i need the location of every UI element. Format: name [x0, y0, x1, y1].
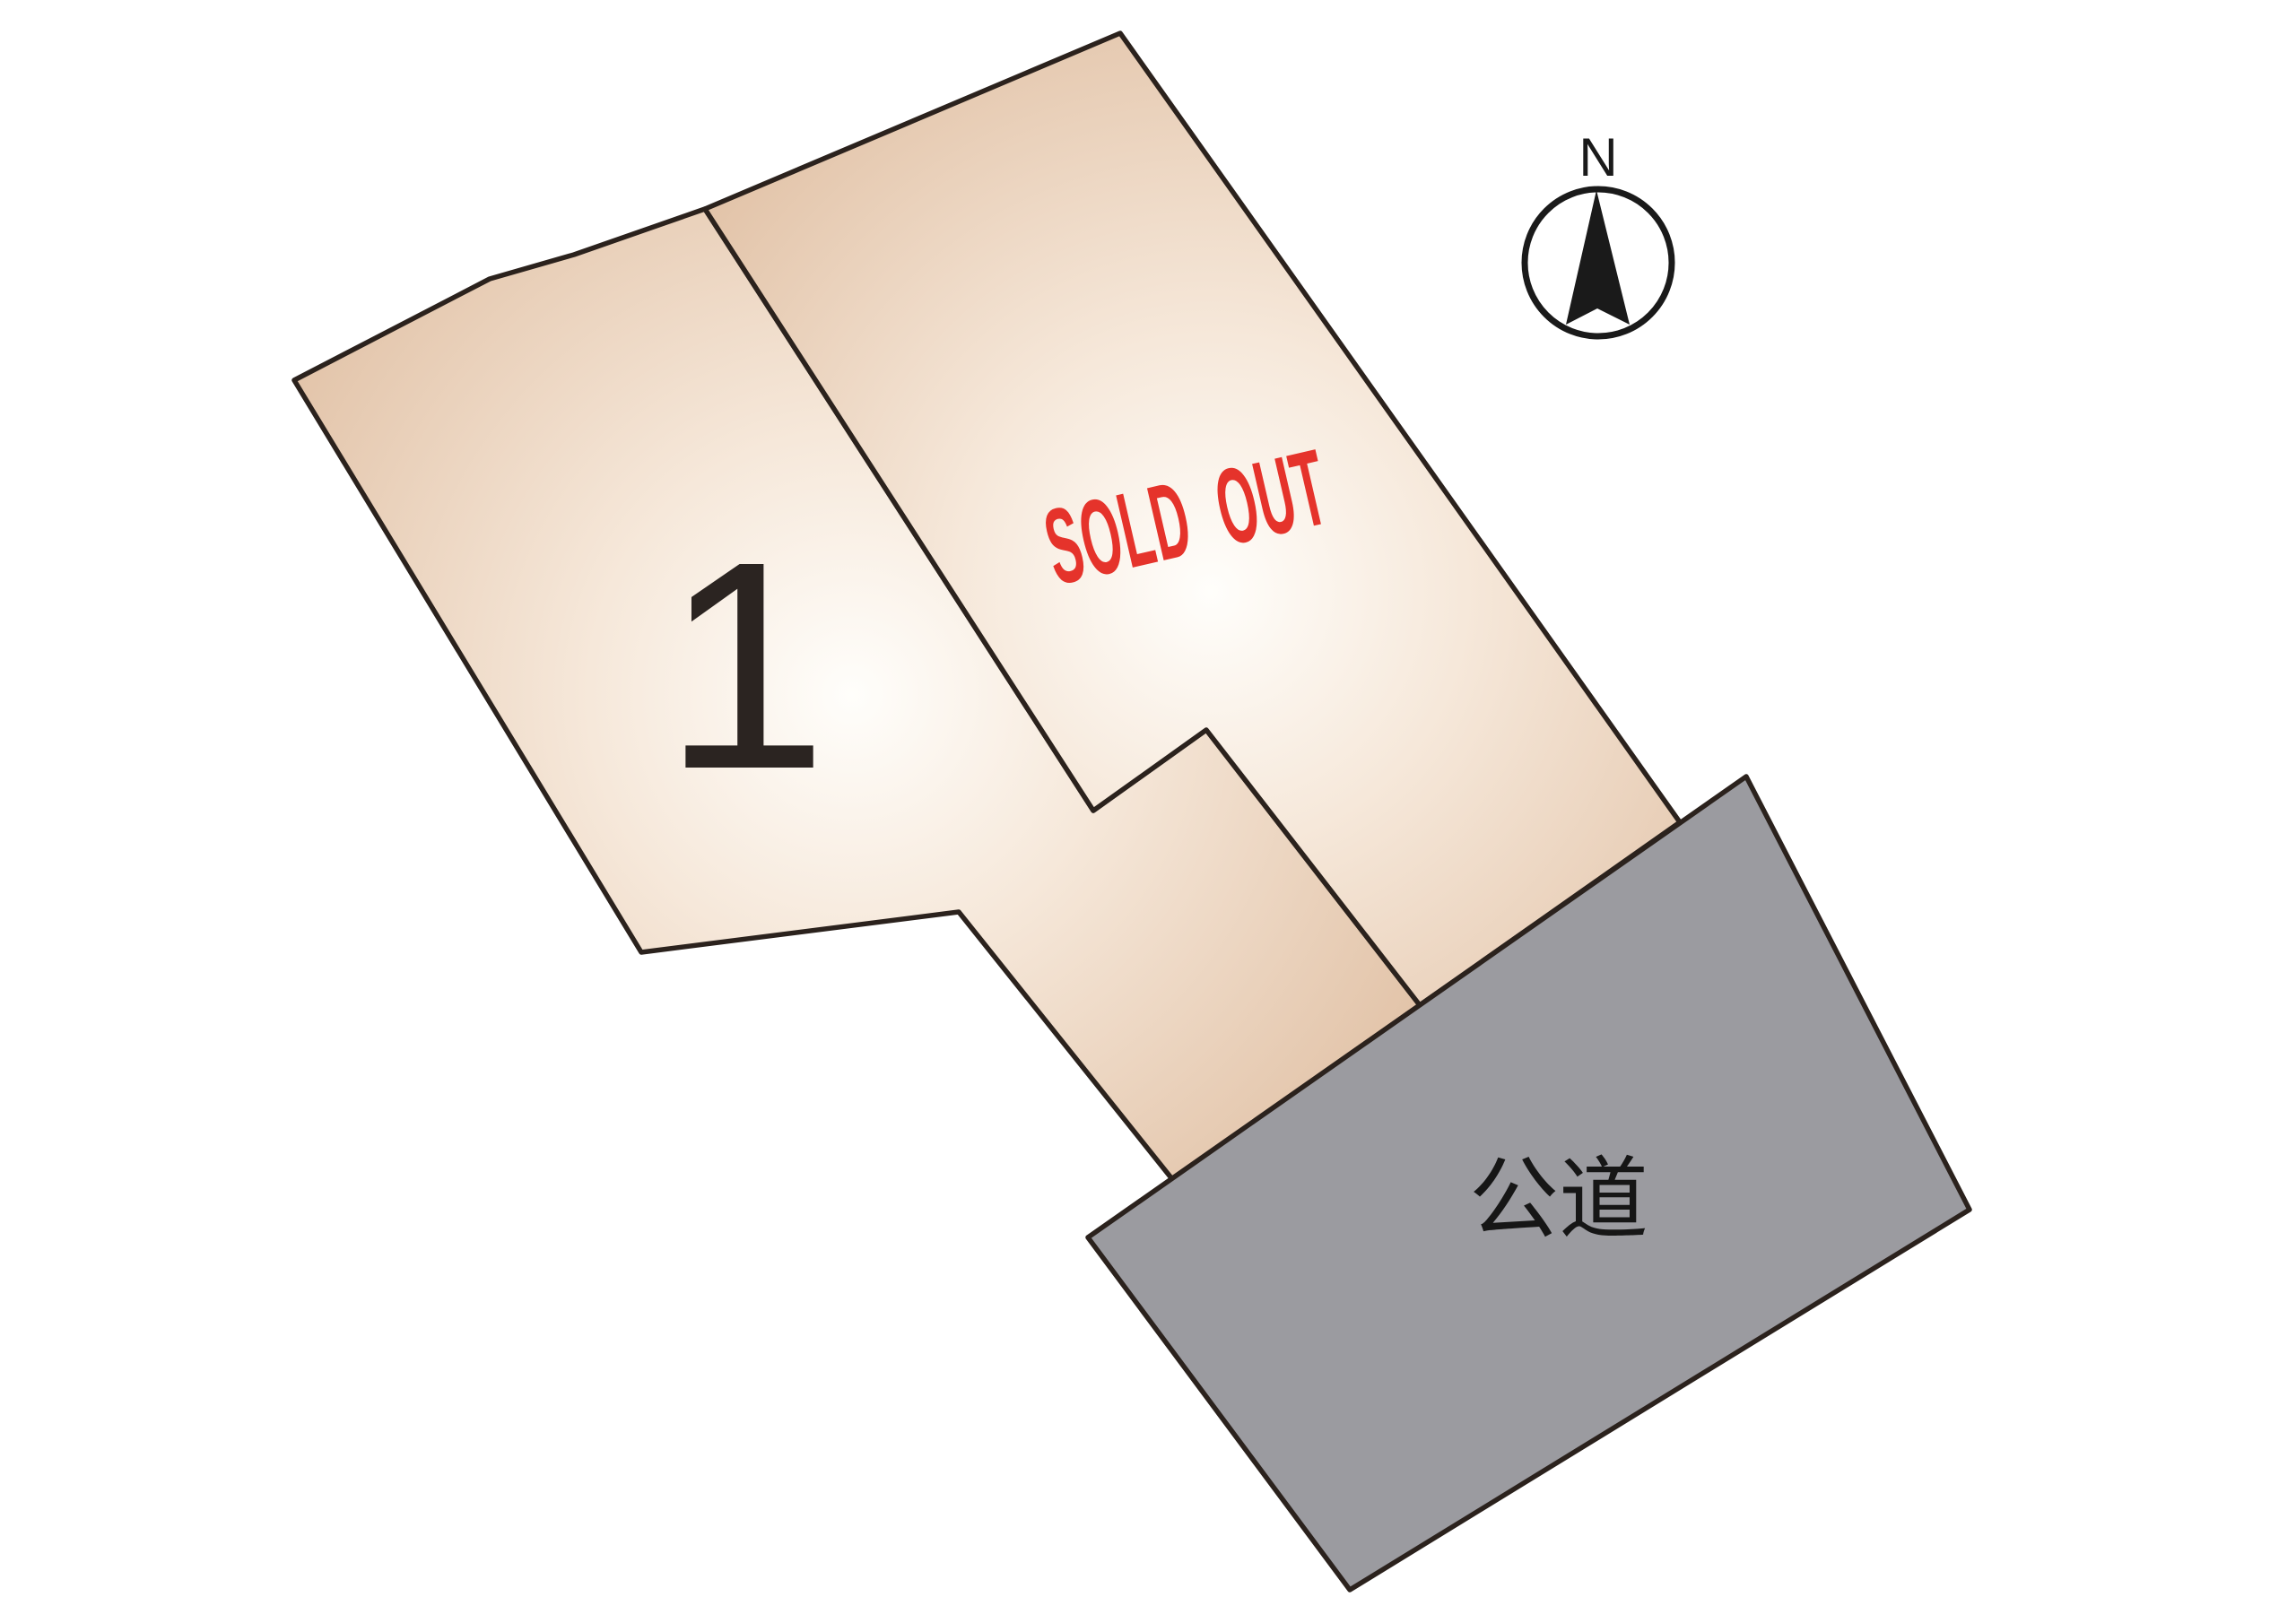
lot-plan-diagram: 1 SOLD OUT 公道 N: [0, 0, 2296, 1623]
public-road-label: 公道: [1469, 1155, 1648, 1245]
lot-1-number-label: 1: [656, 517, 835, 813]
compass-north-label: N: [1578, 131, 1617, 185]
parcel-map: [0, 0, 2296, 1623]
